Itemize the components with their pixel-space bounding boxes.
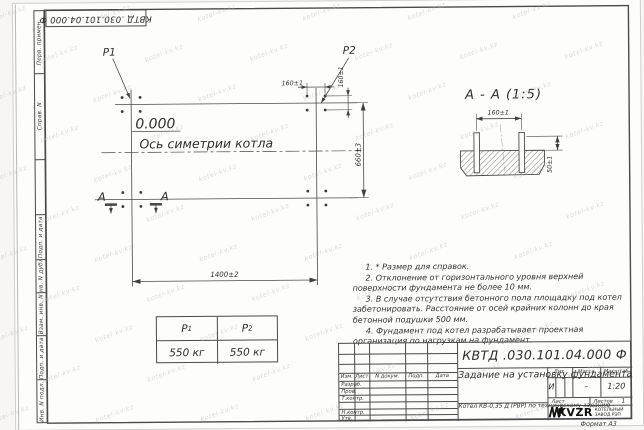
section-letter-right: А bbox=[160, 189, 169, 203]
section-dim-160: 160±1 bbox=[488, 110, 509, 117]
dim-160-horizontal: 160±1 bbox=[282, 80, 303, 87]
stamp-field: Взам. инв. N bbox=[37, 293, 46, 336]
stamp-field: Подп. и дата bbox=[37, 336, 46, 380]
row-nkontr: Н.контр. bbox=[342, 409, 365, 415]
load-value-p1: 550 кг bbox=[157, 341, 217, 364]
stamp-field: Справ. N bbox=[35, 74, 45, 160]
section-letter-left: А bbox=[97, 190, 106, 204]
stamp-field: Подп. и дата bbox=[36, 215, 45, 260]
level-mark: 0.000 bbox=[135, 116, 175, 132]
sheet-label: Лист bbox=[551, 399, 564, 405]
section-title: А - А (1:5) bbox=[464, 87, 542, 103]
col-izm: Изм. bbox=[339, 374, 354, 380]
scale-value: 1:20 bbox=[600, 382, 632, 391]
stamp-field: Инв. N дубл. bbox=[36, 260, 45, 293]
row-utv: Утв. bbox=[342, 416, 353, 422]
topleft-docnumber-box: КВТД .030.101.04.000 Ф bbox=[45, 9, 146, 27]
mass-value: – bbox=[572, 382, 600, 391]
dim-160-vertical: 160±1 bbox=[338, 66, 345, 87]
load-table: P1 P2 550 кг 550 кг bbox=[156, 315, 278, 363]
symmetry-axis-label: Ось симетрии котла bbox=[139, 135, 273, 151]
col-data: Дата bbox=[427, 373, 457, 379]
p2-label: P2 bbox=[343, 45, 356, 57]
stamp-field-label: Инв. N дубл. bbox=[38, 260, 44, 293]
load-table-header-p2: P2 bbox=[216, 316, 277, 339]
anchor-bolt-right bbox=[519, 132, 525, 172]
col-list: Лист bbox=[354, 374, 369, 380]
row-prov: Пров. bbox=[341, 389, 356, 395]
dim-660: 660±3 bbox=[354, 143, 362, 167]
load-value-p2: 550 кг bbox=[216, 340, 277, 363]
title-block: КВТД .030.101.04.000 Ф Изм. Лист N докум… bbox=[338, 341, 632, 421]
row-razrab: Разраб. bbox=[341, 382, 361, 388]
scanned-drawing-sheet: P1 P2 0.000 Ось симетрии котла 1400±2 66… bbox=[0, 0, 644, 430]
titleblock-docnumber: КВТД .030.101.04.000 Ф bbox=[457, 344, 632, 366]
row-tkontr: Т.контр. bbox=[341, 396, 364, 402]
product-name: Котел КВ-0,35 Д (РВР) по техническому за… bbox=[458, 403, 546, 411]
sheets-label: Листов bbox=[593, 398, 612, 404]
load-table-value-row: 550 кг 550 кг bbox=[157, 340, 277, 364]
section-dim-50: 50±1 bbox=[547, 156, 554, 173]
topleft-docnumber: КВТД .030.101.04.000 Ф bbox=[40, 13, 152, 24]
note-line: 3. В случае отсутствия бетонного пола пл… bbox=[353, 292, 639, 326]
spring-icon bbox=[549, 405, 564, 419]
stamp-field: Инв. N подл. bbox=[37, 380, 46, 422]
sheets-value: 1 bbox=[617, 397, 629, 404]
drawing-title: Задание на установку фундамента bbox=[458, 369, 546, 381]
note-line: 2. Отклонение от горизонтального уровня … bbox=[352, 271, 638, 294]
stamp-field bbox=[36, 160, 45, 215]
lit-label: Лит. bbox=[547, 369, 572, 375]
p2-subscript: 2 bbox=[248, 324, 253, 332]
format-label: Формат А3 bbox=[559, 420, 639, 429]
stamp-field-label: Справ. N bbox=[37, 103, 43, 131]
mass-label: Масса bbox=[572, 369, 600, 375]
stamp-field-label: Инв. N подл. bbox=[39, 381, 45, 422]
p1-label: P1 bbox=[103, 47, 116, 59]
load-table-header-p1: P1 bbox=[157, 317, 217, 340]
anchor-bolt-left bbox=[474, 133, 480, 173]
stamp-field-label: Подп. и дата bbox=[38, 216, 44, 258]
load-table-header-row: P1 P2 bbox=[157, 316, 277, 341]
p1-subscript: 1 bbox=[188, 325, 193, 333]
stamp-field-label: Перв. примен. bbox=[36, 19, 42, 65]
stamp-field-label: Взам. инв. N bbox=[38, 294, 44, 334]
dim-1400: 1400±2 bbox=[210, 271, 239, 279]
lit-value: И bbox=[547, 382, 555, 391]
sheet-tilt-wrapper: P1 P2 0.000 Ось симетрии котла 1400±2 66… bbox=[0, 0, 644, 430]
col-podp: Подп. bbox=[405, 373, 427, 379]
logo-subtitle-2: ЗАВОД РЭП bbox=[595, 412, 624, 417]
scale-label: Масштаб bbox=[600, 369, 632, 375]
stamp-field-label: Подп. и дата bbox=[38, 337, 44, 379]
notes-block: 1. * Размер для справок. 2. Отклонение о… bbox=[352, 261, 639, 348]
col-doc: N докум. bbox=[369, 373, 405, 379]
kvzr-logo: KVZR КОТЕЛЬНЫЙ ЗАВОД РЭП bbox=[549, 405, 633, 421]
